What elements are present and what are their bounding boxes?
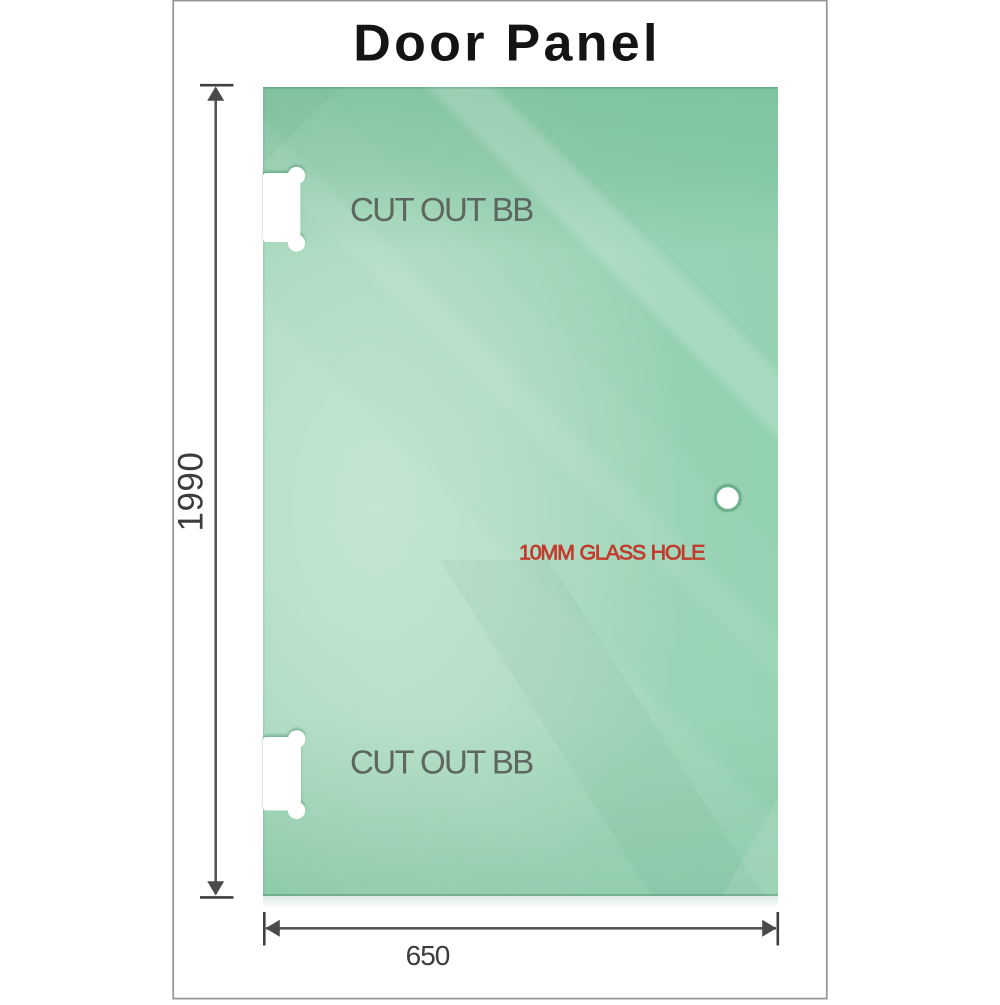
svg-text:Door Panel: Door Panel: [353, 15, 661, 73]
svg-text:CUT OUT BB: CUT OUT BB: [350, 744, 533, 781]
svg-text:650: 650: [406, 940, 450, 971]
svg-text:CUT OUT BB: CUT OUT BB: [350, 191, 533, 228]
svg-text:10MM GLASS HOLE: 10MM GLASS HOLE: [519, 541, 705, 565]
svg-text:1990: 1990: [172, 452, 211, 532]
